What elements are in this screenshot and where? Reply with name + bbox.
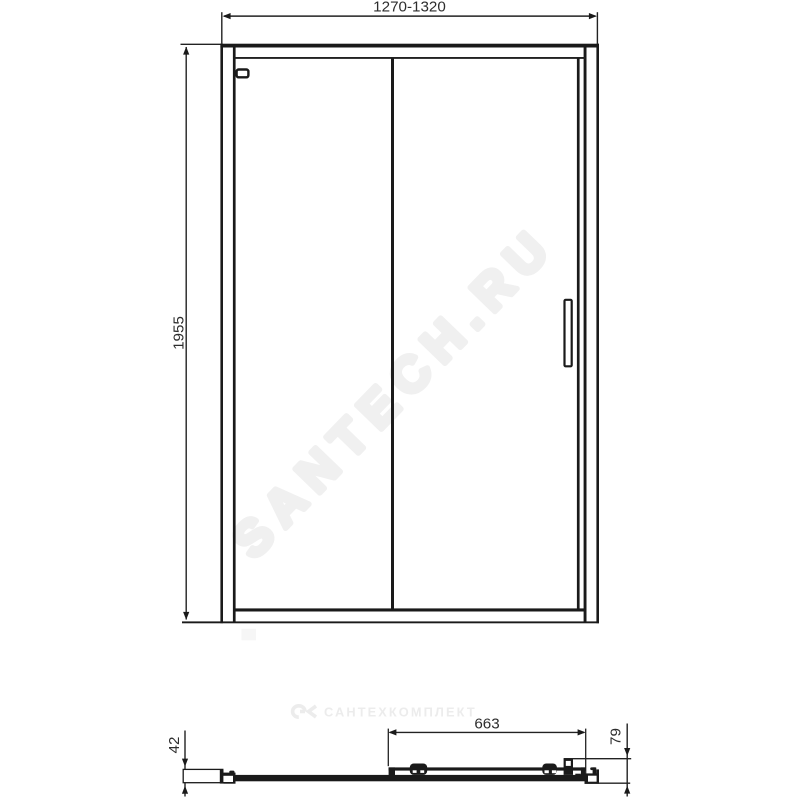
svg-text:42: 42 bbox=[166, 737, 183, 754]
svg-text:САНТЕХКОМПЛЕКТ: САНТЕХКОМПЛЕКТ bbox=[324, 705, 477, 720]
svg-text:1955: 1955 bbox=[170, 316, 187, 350]
svg-text:1270-1320: 1270-1320 bbox=[373, 0, 446, 15]
svg-text:663: 663 bbox=[474, 715, 499, 732]
svg-text:79: 79 bbox=[607, 728, 624, 745]
